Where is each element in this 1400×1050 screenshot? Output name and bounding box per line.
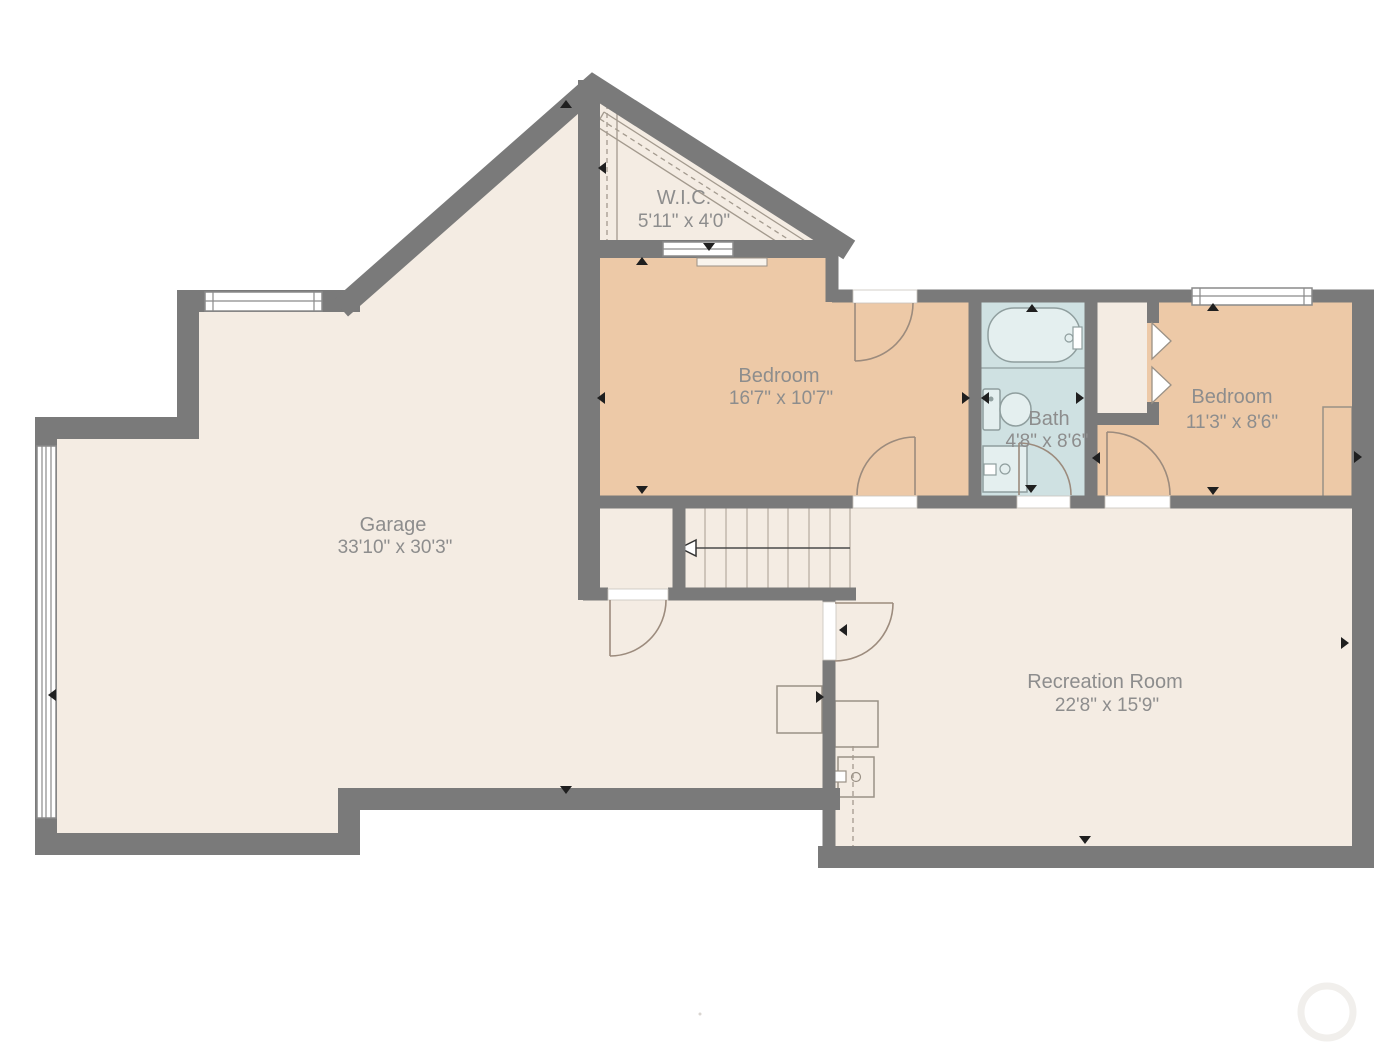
- garage-cabinet-icon: [777, 686, 822, 733]
- sink-faucet-icon: [984, 464, 996, 475]
- garage-label: Garage: [360, 514, 427, 536]
- door-opening: [1017, 496, 1070, 508]
- bath-label: Bath: [1028, 408, 1069, 430]
- door-opening: [853, 496, 917, 508]
- page-dot: [699, 1013, 702, 1016]
- toilet-bowl-icon: [1000, 393, 1031, 426]
- bedroom1-label: Bedroom: [738, 365, 819, 387]
- recreation-dims: 22'8" x 15'9": [1055, 695, 1159, 716]
- door-opening: [608, 589, 668, 600]
- floorplan-drawing: W.I.C. 5'11" x 4'0" Bedroom 16'7" x 10'7…: [0, 0, 1400, 1050]
- bath-dims: 4'8" x 8'6": [1005, 431, 1088, 452]
- tub-faucet-icon: [1073, 327, 1082, 349]
- watermark-logo: [1301, 986, 1353, 1038]
- garage-door: [37, 446, 56, 818]
- bedroom2-label: Bedroom: [1191, 386, 1272, 408]
- toilet-button-icon: [989, 397, 994, 402]
- wic-label: W.I.C.: [657, 187, 711, 209]
- rec-cabinet-icon: [835, 701, 878, 747]
- garage-window: [205, 292, 322, 311]
- door-opening: [853, 290, 917, 303]
- door-opening: [1105, 496, 1170, 508]
- floorplan-page: W.I.C. 5'11" x 4'0" Bedroom 16'7" x 10'7…: [0, 0, 1400, 1050]
- bedroom2-window: [1192, 288, 1312, 305]
- wic-dims: 5'11" x 4'0": [638, 211, 730, 232]
- bedroom1-dims: 16'7" x 10'7": [729, 388, 833, 409]
- bedroom2-dims: 11'3" x 8'6": [1186, 412, 1278, 433]
- garage-dims: 33'10" x 30'3": [338, 537, 453, 558]
- door-opening: [823, 602, 836, 660]
- recreation-label: Recreation Room: [1027, 671, 1183, 693]
